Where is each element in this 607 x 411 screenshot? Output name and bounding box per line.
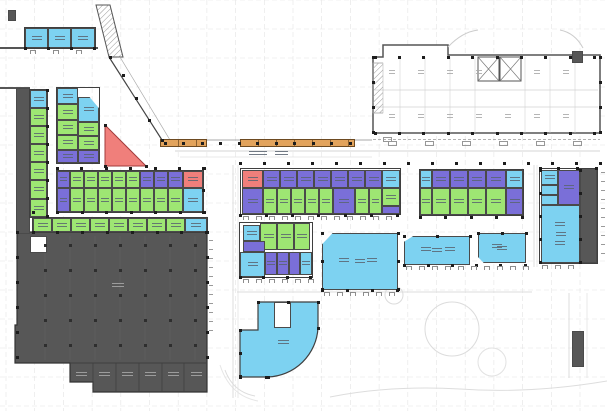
column-dot	[267, 376, 270, 379]
label-smudge	[418, 114, 424, 119]
column-dot	[46, 89, 49, 92]
unit-label-smudge	[63, 125, 73, 130]
unit-label-smudge	[34, 169, 44, 174]
unit-label-smudge	[294, 199, 302, 204]
unit-label-smudge	[76, 223, 86, 228]
label-smudge	[421, 247, 431, 252]
column-dot	[69, 319, 72, 322]
column-dot	[16, 306, 19, 309]
column-dot	[469, 235, 472, 238]
column-dot	[569, 56, 572, 59]
unit-label-smudge	[454, 177, 464, 182]
column-dot	[397, 288, 400, 291]
column-dot	[593, 132, 596, 135]
parking-stall-box	[462, 141, 471, 146]
unit-label-smudge	[95, 223, 105, 228]
column-dot	[383, 162, 386, 165]
column-dot	[46, 125, 49, 128]
column-dot	[471, 132, 474, 135]
unit-label-smudge	[281, 234, 291, 239]
unit-label-smudge	[339, 199, 349, 204]
column-dot	[46, 179, 49, 182]
column-dot	[69, 344, 72, 347]
column-dot	[521, 216, 524, 219]
unit-label-smudge	[171, 223, 181, 228]
stall-mark	[295, 279, 301, 283]
unit-label-smudge	[279, 261, 286, 266]
unit-label-smudge	[32, 36, 42, 41]
unit-label-smudge	[115, 198, 123, 203]
annotation-layer	[0, 0, 607, 411]
column-dot	[24, 47, 27, 50]
stall-mark	[568, 265, 574, 269]
dimension-tick	[209, 267, 213, 268]
unit-label-smudge	[78, 36, 88, 41]
label-smudge	[563, 114, 569, 119]
label-smudge	[534, 70, 540, 75]
column-dot	[81, 211, 84, 214]
column-dot	[94, 244, 97, 247]
label-smudge	[555, 241, 565, 246]
unit-label-smudge	[129, 198, 137, 203]
dimension-tick	[209, 249, 213, 250]
stall-mark	[321, 216, 327, 220]
column-dot	[398, 132, 401, 135]
column-dot	[544, 56, 547, 59]
unit-label-smudge	[73, 198, 81, 203]
column-dot	[94, 319, 97, 322]
unit-label-smudge	[432, 248, 442, 253]
unit-label-smudge	[87, 198, 95, 203]
unit-label-smudge	[436, 177, 446, 182]
label-smudge	[563, 70, 569, 75]
stall-mark	[542, 265, 548, 269]
column-dot	[396, 214, 399, 217]
column-dot	[148, 119, 151, 122]
column-dot	[69, 244, 72, 247]
column-dot	[239, 162, 242, 165]
column-dot	[104, 165, 107, 168]
stall-mark	[308, 216, 314, 220]
column-dot	[180, 231, 183, 234]
label-smudge	[418, 70, 424, 75]
unit-label-smudge	[491, 177, 501, 182]
parking-stall-box	[425, 141, 434, 146]
stall-mark	[256, 279, 262, 283]
column-dot	[455, 162, 458, 165]
label-smudge	[112, 283, 124, 288]
column-dot	[122, 74, 125, 77]
column-dot	[539, 192, 542, 195]
column-dot	[169, 269, 172, 272]
dimension-tick	[601, 226, 605, 227]
column-dot	[238, 142, 241, 145]
unit-label-smudge	[545, 175, 555, 180]
unit-label-smudge	[143, 177, 151, 182]
column-dot	[317, 301, 320, 304]
unit-label-smudge	[57, 223, 67, 228]
dimension-tick	[601, 208, 605, 209]
column-dot	[501, 232, 504, 235]
column-dot	[447, 132, 450, 135]
column-dot	[239, 375, 242, 378]
stall-mark	[445, 266, 451, 270]
unit-label-smudge	[386, 195, 396, 200]
column-dot	[194, 344, 197, 347]
column-dot	[335, 162, 338, 165]
column-dot	[496, 132, 499, 135]
dimension-tick	[209, 312, 213, 313]
unit-label-smudge	[188, 177, 198, 182]
column-dot	[579, 169, 582, 172]
column-dot	[477, 232, 480, 235]
column-dot	[135, 97, 138, 100]
column-dot	[178, 167, 181, 170]
column-dot	[371, 289, 374, 292]
column-dot	[144, 269, 147, 272]
column-dot	[46, 107, 49, 110]
label-smudge	[476, 70, 482, 75]
column-dot	[330, 142, 333, 145]
column-dot	[119, 269, 122, 272]
unit-label-smudge	[34, 115, 44, 120]
stall-mark	[282, 216, 288, 220]
column-dot	[169, 244, 172, 247]
column-dot	[539, 169, 542, 172]
stall-mark	[363, 292, 369, 296]
stall-mark	[471, 266, 477, 270]
column-dot	[46, 161, 49, 164]
stall-mark	[324, 292, 330, 296]
column-dot	[44, 344, 47, 347]
label-smudge	[447, 114, 453, 119]
column-dot	[471, 56, 474, 59]
column-dot	[262, 276, 265, 279]
unit-label-smudge	[84, 127, 94, 132]
unit-label-smudge	[335, 177, 345, 182]
unit-label-smudge	[34, 133, 44, 138]
column-dot	[44, 244, 47, 247]
unit-label-smudge	[472, 177, 482, 182]
unit-label-smudge	[308, 199, 316, 204]
label-smudge	[339, 258, 349, 263]
floor-plan-canvas	[0, 0, 607, 411]
column-dot	[422, 132, 425, 135]
column-dot	[427, 264, 430, 267]
stall-mark	[30, 50, 36, 54]
column-dot	[239, 329, 242, 332]
unit-label-smudge	[355, 259, 365, 264]
stall-mark	[347, 216, 353, 220]
dimension-tick	[209, 276, 213, 277]
unit-label-smudge	[422, 199, 429, 204]
unit-label-smudge	[84, 141, 94, 146]
column-dot	[257, 301, 260, 304]
unit-label-smudge	[264, 234, 274, 239]
stall-mark	[295, 216, 301, 220]
label-smudge	[76, 372, 87, 377]
unit-label-smudge	[63, 110, 73, 115]
unit-label-smudge	[372, 199, 380, 204]
column-dot	[321, 260, 324, 263]
column-dot	[202, 189, 205, 192]
stall-mark	[334, 216, 340, 220]
column-dot	[56, 231, 59, 234]
column-dot	[44, 319, 47, 322]
label-smudge	[492, 244, 502, 249]
stall-mark	[53, 50, 59, 54]
dimension-tick	[209, 303, 213, 304]
stall-mark	[269, 216, 275, 220]
unit-label-smudge	[87, 177, 95, 182]
column-dot	[293, 142, 296, 145]
column-dot	[69, 269, 72, 272]
column-dot	[287, 162, 290, 165]
column-dot	[317, 214, 320, 217]
stall-mark	[282, 279, 288, 283]
column-dot	[527, 162, 530, 165]
unit-label-smudge	[301, 177, 311, 182]
column-dot	[372, 81, 375, 84]
dimension-tick	[601, 217, 605, 218]
label-smudge	[445, 247, 455, 252]
label-smudge	[389, 70, 395, 75]
unit-label-smudge	[63, 140, 73, 145]
stall-mark	[337, 292, 343, 296]
dimension-tick	[209, 330, 213, 331]
column-dot	[317, 327, 320, 330]
stall-mark	[555, 265, 561, 269]
column-dot	[372, 106, 375, 109]
column-dot	[321, 288, 324, 291]
unit-label-smudge	[266, 199, 274, 204]
column-dot	[179, 211, 182, 214]
column-dot	[16, 256, 19, 259]
column-dot	[70, 47, 73, 50]
column-dot	[94, 344, 97, 347]
unit-label-smudge	[101, 198, 109, 203]
unit-label-smudge	[157, 198, 165, 203]
column-dot	[525, 232, 528, 235]
column-dot	[451, 264, 454, 267]
unit-label-smudge	[73, 177, 81, 182]
column-dot	[349, 142, 352, 145]
stall-mark	[243, 279, 249, 283]
column-dot	[202, 211, 205, 214]
column-dot	[447, 56, 450, 59]
label-smudge	[191, 372, 202, 377]
column-dot	[397, 232, 400, 235]
dimension-tick	[601, 181, 605, 182]
column-dot	[520, 132, 523, 135]
label-smudge	[99, 372, 110, 377]
dimension-tick	[601, 199, 605, 200]
column-dot	[403, 235, 406, 238]
column-dot	[119, 294, 122, 297]
stall-mark	[376, 292, 382, 296]
unit-label-smudge	[157, 177, 165, 182]
unit-label-smudge	[152, 223, 162, 228]
unit-label-smudge	[63, 154, 73, 159]
column-dot	[106, 231, 109, 234]
unit-label-smudge	[510, 199, 520, 204]
column-dot	[94, 294, 97, 297]
unit-label-smudge	[34, 151, 44, 156]
unit-label-smudge	[318, 177, 328, 182]
column-dot	[104, 124, 107, 127]
column-dot	[239, 276, 242, 279]
column-dot	[194, 319, 197, 322]
column-dot	[287, 301, 290, 304]
label-smudge	[505, 114, 511, 119]
column-dot	[182, 142, 185, 145]
column-dot	[470, 216, 473, 219]
unit-label-smudge	[472, 199, 482, 204]
column-dot	[144, 344, 147, 347]
unit-label-smudge	[129, 177, 137, 182]
label-smudge	[278, 340, 289, 345]
stall-mark	[350, 292, 356, 296]
column-dot	[551, 162, 554, 165]
unit-label-smudge	[171, 198, 180, 203]
column-dot	[16, 281, 19, 284]
unit-label-smudge	[101, 177, 109, 182]
column-dot	[47, 47, 50, 50]
parking-stall-box	[499, 141, 508, 146]
unit-label-smudge	[267, 261, 274, 266]
dimension-tick	[601, 190, 605, 191]
unit-label-smudge	[436, 199, 446, 204]
dimension-tick	[601, 244, 605, 245]
stall-mark	[256, 216, 262, 220]
unit-label-smudge	[60, 177, 68, 182]
unit-label-smudge	[352, 177, 362, 182]
column-dot	[579, 192, 582, 195]
unit-label-smudge	[248, 199, 258, 204]
column-dot	[46, 143, 49, 146]
column-dot	[579, 261, 582, 264]
stall-mark	[510, 266, 516, 270]
unit-label-smudge	[556, 232, 566, 237]
unit-label-smudge	[322, 199, 330, 204]
stall-mark	[484, 266, 490, 270]
stall-mark	[458, 266, 464, 270]
label-smudge	[447, 70, 453, 75]
column-dot	[496, 56, 499, 59]
column-dot	[206, 231, 209, 234]
column-dot	[201, 142, 204, 145]
unit-label-smudge	[454, 199, 464, 204]
unit-label-smudge	[491, 199, 501, 204]
dimension-tick	[209, 240, 213, 241]
unit-label-smudge	[369, 177, 379, 182]
column-dot	[169, 294, 172, 297]
column-dot	[81, 231, 84, 234]
column-dot	[539, 261, 542, 264]
column-dot	[194, 294, 197, 297]
column-dot	[520, 56, 523, 59]
column-dot	[169, 344, 172, 347]
column-dot	[431, 162, 434, 165]
stall-mark	[269, 279, 275, 283]
column-dot	[579, 215, 582, 218]
column-dot	[69, 294, 72, 297]
column-dot	[539, 215, 542, 218]
column-dot	[46, 215, 49, 218]
column-dot	[156, 231, 159, 234]
column-dot	[312, 142, 315, 145]
column-dot	[372, 131, 375, 134]
unit-label-smudge	[280, 199, 288, 204]
stall-mark	[523, 266, 529, 270]
column-dot	[495, 216, 498, 219]
unit-label-smudge	[55, 36, 65, 41]
stall-mark	[432, 266, 438, 270]
column-dot	[119, 319, 122, 322]
column-dot	[503, 162, 506, 165]
column-dot	[265, 214, 268, 217]
column-dot	[32, 231, 35, 234]
column-dot	[422, 56, 425, 59]
column-dot	[94, 269, 97, 272]
column-dot	[599, 81, 602, 84]
dimension-tick	[209, 285, 213, 286]
unit-label-smudge	[284, 177, 294, 182]
column-dot	[579, 238, 582, 241]
column-dot	[256, 142, 259, 145]
column-dot	[105, 211, 108, 214]
column-dot	[206, 306, 209, 309]
column-dot	[359, 162, 362, 165]
unit-label-smudge	[564, 185, 574, 190]
column-dot	[119, 344, 122, 347]
stall-mark	[406, 266, 412, 270]
dimension-tick	[601, 172, 605, 173]
column-dot	[239, 214, 242, 217]
column-dot	[539, 238, 542, 241]
stall-mark	[389, 292, 395, 296]
stall-mark	[373, 216, 379, 220]
column-dot	[444, 216, 447, 219]
label-smudge	[168, 372, 179, 377]
parking-stall-box	[536, 141, 545, 146]
unit-label-smudge	[84, 154, 94, 159]
unit-label-smudge	[143, 198, 151, 203]
column-dot	[419, 216, 422, 219]
column-dot	[16, 231, 19, 234]
unit-label-smudge	[188, 198, 198, 203]
column-dot	[130, 211, 133, 214]
column-dot	[321, 232, 324, 235]
column-dot	[599, 131, 602, 134]
parking-stall-box	[383, 137, 392, 142]
column-dot	[206, 281, 209, 284]
column-dot	[80, 167, 83, 170]
stall-mark	[308, 279, 314, 283]
column-dot	[16, 331, 19, 334]
unit-label-smudge	[114, 223, 124, 228]
stall-mark	[76, 50, 82, 54]
stall-mark	[243, 216, 249, 220]
unit-label-smudge	[422, 177, 429, 182]
column-dot	[599, 162, 602, 165]
column-dot	[129, 167, 132, 170]
dimension-tick	[601, 253, 605, 254]
column-dot	[169, 319, 172, 322]
column-dot	[593, 56, 596, 59]
column-dot	[44, 269, 47, 272]
unit-label-smudge	[63, 94, 73, 99]
